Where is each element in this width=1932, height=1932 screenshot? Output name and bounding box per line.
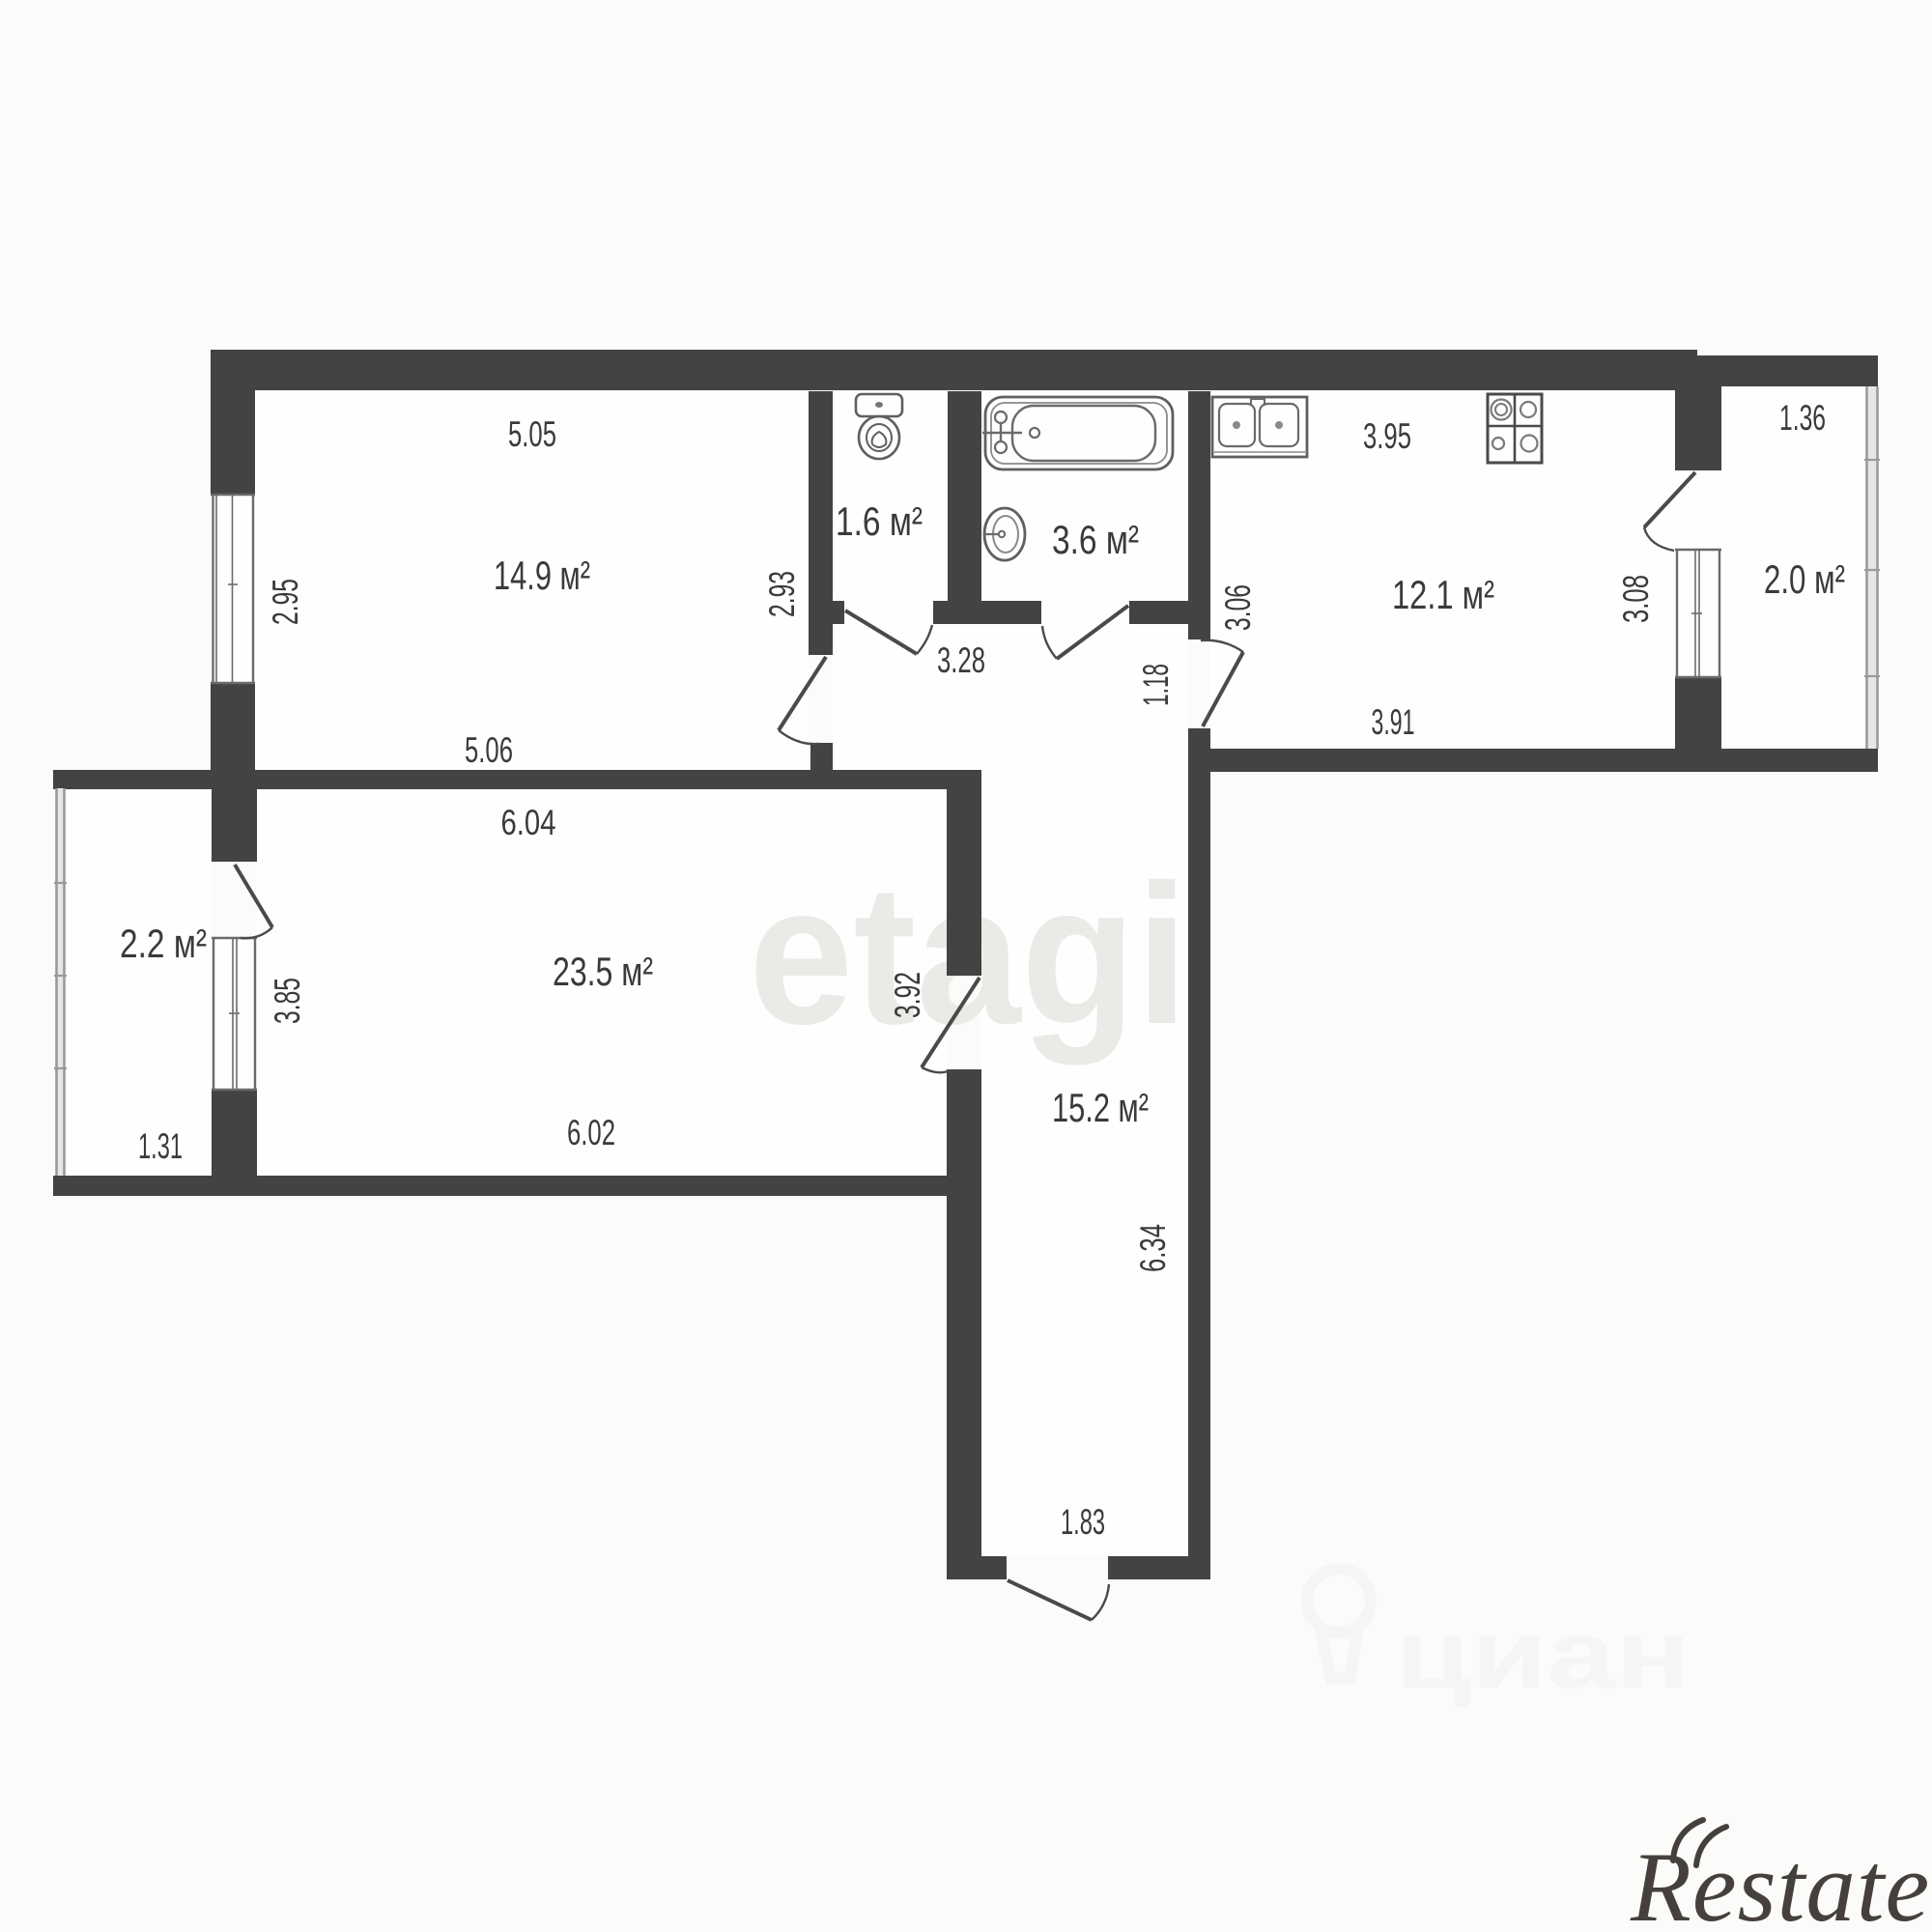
svg-text:2.95: 2.95	[266, 579, 305, 625]
svg-text:3.85: 3.85	[268, 978, 307, 1024]
svg-text:15.2 м²: 15.2 м²	[1052, 1085, 1149, 1130]
svg-text:3.95: 3.95	[1363, 416, 1411, 456]
svg-text:1.31: 1.31	[138, 1126, 183, 1166]
svg-text:1.6 м²: 1.6 м²	[836, 498, 923, 544]
svg-text:5.05: 5.05	[508, 414, 556, 454]
svg-text:23.5 м²: 23.5 м²	[553, 949, 653, 994]
svg-text:2.93: 2.93	[762, 571, 802, 617]
svg-text:2.2 м²: 2.2 м²	[120, 921, 207, 966]
svg-text:6.04: 6.04	[501, 803, 556, 842]
svg-text:Restate: Restate	[1630, 1833, 1930, 1932]
svg-text:3.06: 3.06	[1218, 584, 1258, 631]
svg-text:5.06: 5.06	[465, 730, 513, 770]
svg-text:1.18: 1.18	[1136, 664, 1176, 706]
svg-text:3.08: 3.08	[1616, 575, 1656, 623]
svg-text:3.28: 3.28	[937, 640, 985, 680]
svg-text:6.34: 6.34	[1133, 1224, 1173, 1272]
svg-text:1.83: 1.83	[1061, 1502, 1105, 1542]
svg-text:циан: циан	[1395, 1601, 1690, 1709]
svg-text:6.02: 6.02	[567, 1113, 615, 1152]
svg-text:3.91: 3.91	[1372, 702, 1415, 742]
svg-text:3.92: 3.92	[888, 972, 927, 1018]
svg-text:12.1 м²: 12.1 м²	[1392, 572, 1494, 617]
svg-text:2.0 м²: 2.0 м²	[1764, 556, 1845, 602]
svg-text:1.36: 1.36	[1779, 398, 1826, 438]
svg-text:3.6 м²: 3.6 м²	[1052, 517, 1139, 562]
svg-text:14.9 м²: 14.9 м²	[494, 553, 590, 598]
